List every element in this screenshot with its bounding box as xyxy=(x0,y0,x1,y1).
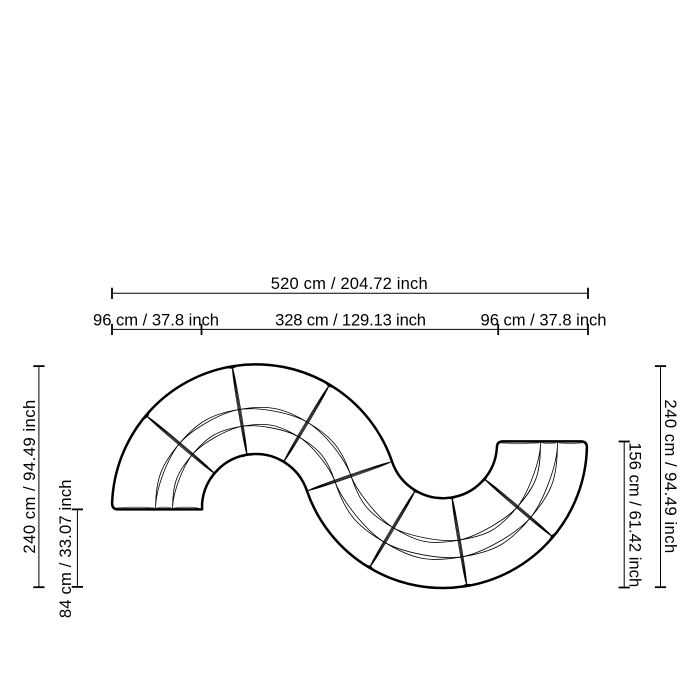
svg-text:328 cm / 129.13 inch: 328 cm / 129.13 inch xyxy=(275,310,426,329)
svg-text:156 cm / 61.42 inch: 156 cm / 61.42 inch xyxy=(625,442,644,587)
svg-text:84 cm / 33.07 inch: 84 cm / 33.07 inch xyxy=(56,479,75,618)
svg-text:520 cm / 204.72 inch: 520 cm / 204.72 inch xyxy=(271,274,428,293)
svg-text:96 cm / 37.8 inch: 96 cm / 37.8 inch xyxy=(93,310,219,329)
svg-text:240 cm / 94.49 inch: 240 cm / 94.49 inch xyxy=(661,399,680,553)
svg-text:96 cm / 37.8 inch: 96 cm / 37.8 inch xyxy=(480,310,606,329)
svg-text:240 cm / 94.49 inch: 240 cm / 94.49 inch xyxy=(20,399,39,553)
